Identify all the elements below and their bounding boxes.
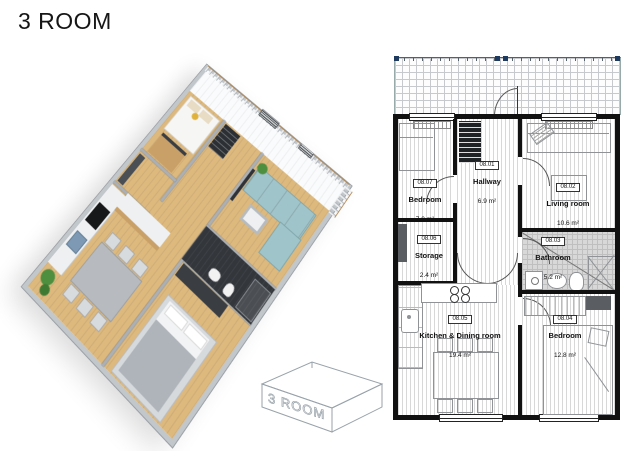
- iso-chair: [131, 258, 149, 278]
- iso-pillow: [183, 323, 208, 350]
- dining-table-outline: [433, 352, 499, 399]
- iso-bathroom: [182, 226, 275, 325]
- iso-chair: [89, 311, 107, 332]
- window-bedroom-0804: [539, 414, 599, 422]
- bath-sink: [547, 273, 567, 289]
- chair-outline: [477, 338, 493, 352]
- stairs: [459, 121, 481, 163]
- wall-interior: [518, 119, 522, 157]
- wall-interior: [518, 325, 522, 415]
- iso-dining-table: [70, 241, 142, 322]
- railing-post: [615, 56, 620, 61]
- iso-chair: [104, 232, 122, 252]
- window-bedroom-0807: [409, 113, 455, 121]
- iso-pillow: [164, 304, 188, 331]
- plan-terrace: [394, 57, 621, 115]
- wall-right: [615, 114, 620, 420]
- chair-outline: [437, 399, 453, 413]
- volume-label: 3 ROOM: [268, 390, 325, 422]
- iso-sofa-chaise: [258, 221, 301, 272]
- chair-outline: [477, 399, 493, 413]
- wall-left: [393, 114, 398, 420]
- duct-shaft: [398, 224, 407, 262]
- wall-interior: [518, 285, 522, 297]
- window-living: [541, 113, 597, 121]
- iso-storage-shelf: [117, 153, 145, 185]
- faucet: [407, 315, 411, 319]
- stove-burner: [461, 294, 470, 303]
- kitchen-sink: [401, 309, 419, 333]
- railing-post: [503, 56, 508, 61]
- wall-bathroom-top: [522, 228, 615, 232]
- iso-bed-near-frame: [111, 294, 217, 423]
- chair-outline: [457, 399, 473, 413]
- wall-interior: [453, 119, 457, 175]
- kitchen-counter-top: [421, 283, 497, 303]
- iso-wall: [181, 257, 252, 325]
- iso-toilet: [221, 281, 236, 298]
- railing-post: [394, 56, 399, 61]
- toilet: [569, 272, 584, 291]
- iso-shower: [235, 278, 271, 322]
- floor-plan-2d: 08.01 Hallway 6.9 m² 08.02 Living room 1…: [393, 57, 620, 425]
- stove-burner: [450, 294, 459, 303]
- iso-chair: [62, 283, 80, 304]
- iso-plant-2: [38, 266, 58, 289]
- iso-chair: [76, 297, 94, 318]
- duct-shaft: [585, 296, 611, 310]
- iso-wardrobe: [175, 263, 228, 318]
- iso-chair: [117, 245, 135, 265]
- chair-outline: [457, 338, 473, 352]
- iso-sink: [207, 266, 223, 284]
- coffee-table-outline: [551, 175, 587, 201]
- bed-line: [399, 137, 433, 138]
- iso-blanket: [118, 319, 196, 412]
- iso-kitchen-counter-left: [48, 184, 126, 276]
- iso-kitchen-sink: [66, 230, 88, 254]
- wall-bathroom-bottom: [522, 290, 615, 294]
- terrace-railing-side: [328, 187, 352, 218]
- wall-interior: [518, 263, 522, 285]
- volume-diagram: 3 ROOM: [252, 354, 392, 451]
- washing-machine-door: [531, 277, 539, 285]
- bed-outline-0807: [399, 123, 435, 171]
- wall-interior: [453, 203, 457, 285]
- railing-post: [495, 56, 500, 61]
- chair-outline: [437, 338, 453, 352]
- iso-bed-near: [118, 301, 209, 413]
- wardrobe-outline: [524, 296, 586, 316]
- iso-wall: [102, 259, 184, 367]
- iso-wall: [206, 225, 276, 291]
- wall-interior: [398, 218, 457, 222]
- iso-plant-3: [37, 282, 52, 299]
- box-right-face: [332, 384, 382, 432]
- window-kitchen: [439, 414, 503, 422]
- terrace-door-arc: [494, 88, 518, 116]
